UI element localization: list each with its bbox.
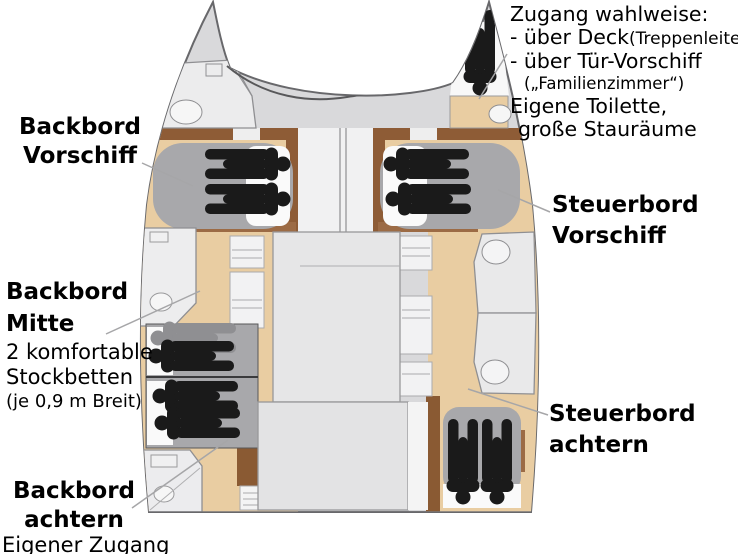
- access-note-feature2: große Stauräume: [510, 118, 738, 141]
- access-note-bullet2-detail: („Familienzimmer“): [510, 73, 738, 96]
- label-backbord-mitte: Backbord Mitte 2 komfortable Stockbetten…: [6, 276, 153, 414]
- access-note-title: Zugang wahlweise:: [510, 3, 738, 26]
- toilet-icon: [170, 100, 202, 124]
- toilet-icon: [489, 105, 511, 123]
- port-bow-bathroom: [148, 60, 256, 128]
- cockpit-entry: [258, 402, 408, 510]
- port-fore-bed: [153, 143, 293, 229]
- starboard-mid-cabinets: [400, 236, 432, 396]
- starboard-aft-bed: [443, 407, 521, 508]
- label-steuerbord-achtern: Steuerbord achtern: [549, 399, 696, 461]
- starboard-fore-bed: [380, 143, 520, 229]
- deck-plan: Zugang wahlweise: - über Deck(Treppenlei…: [0, 0, 738, 554]
- label-eigener-zugang: Eigener Zugang: [2, 533, 169, 554]
- label-backbord-vorschiff: Backbord Vorschiff: [14, 113, 146, 171]
- starboard-mid-bathrooms: [474, 232, 536, 394]
- toilet-icon: [481, 360, 509, 384]
- access-note-bullet2: - über Tür-Vorschiff: [510, 50, 738, 73]
- saloon: [273, 232, 400, 402]
- label-backbord-achtern: Backbord achtern: [10, 477, 138, 535]
- access-note-feature1: Eigene Toilette,: [510, 95, 738, 118]
- access-note: Zugang wahlweise: - über Deck(Treppenlei…: [510, 3, 738, 140]
- label-steuerbord-vorschiff: Steuerbord Vorschiff: [552, 190, 699, 252]
- toilet-icon: [154, 486, 174, 502]
- person-icon: [464, 10, 497, 96]
- port-mid-cabinets: [230, 236, 264, 328]
- port-bunk-beds: [146, 322, 258, 449]
- access-note-bullet1: - über Deck(Treppenleiter): [510, 26, 738, 51]
- sink-icon: [482, 240, 510, 264]
- stern-platform: [149, 512, 531, 554]
